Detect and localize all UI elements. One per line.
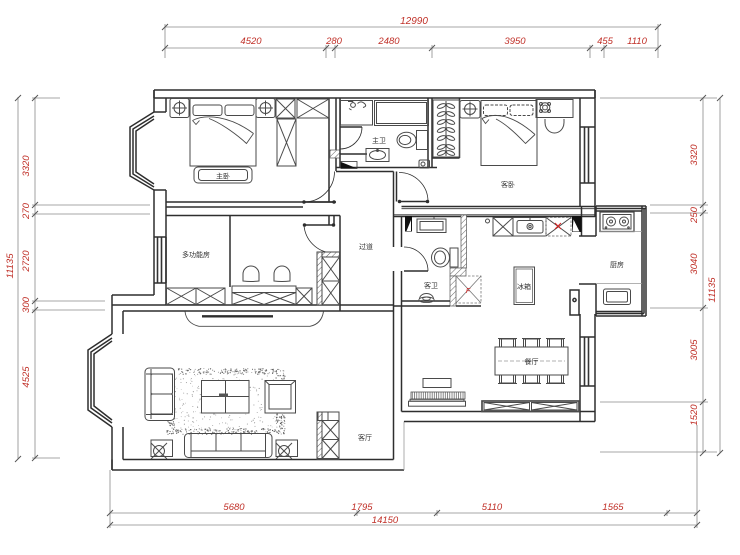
svg-text:3320: 3320 — [689, 144, 700, 166]
svg-text:餐厅: 餐厅 — [525, 357, 539, 366]
svg-text:3950: 3950 — [504, 36, 526, 47]
svg-text:客厅: 客厅 — [358, 433, 372, 442]
svg-text:主卧: 主卧 — [216, 172, 230, 181]
svg-text:5110: 5110 — [482, 502, 503, 513]
svg-text:主卫: 主卫 — [372, 136, 386, 145]
svg-text:455: 455 — [597, 36, 614, 47]
svg-text:5680: 5680 — [223, 502, 245, 513]
svg-text:1520: 1520 — [689, 404, 700, 426]
svg-text:250: 250 — [689, 206, 700, 224]
svg-text:300: 300 — [21, 296, 32, 313]
svg-text:280: 280 — [325, 36, 343, 47]
svg-text:2720: 2720 — [21, 250, 32, 273]
svg-text:过道: 过道 — [359, 242, 373, 251]
svg-text:3040: 3040 — [689, 253, 700, 275]
svg-text:1110: 1110 — [627, 36, 647, 47]
svg-text:1795: 1795 — [351, 502, 373, 513]
svg-text:4525: 4525 — [21, 366, 32, 388]
svg-text:12990: 12990 — [400, 16, 428, 27]
svg-text:3005: 3005 — [689, 339, 700, 361]
svg-text:270: 270 — [21, 202, 32, 220]
svg-text:多功能房: 多功能房 — [182, 250, 210, 259]
svg-text:11135: 11135 — [5, 253, 16, 279]
svg-text:1565: 1565 — [602, 502, 624, 513]
svg-text:冰箱: 冰箱 — [517, 282, 531, 291]
svg-text:客卫: 客卫 — [424, 281, 438, 290]
svg-text:2480: 2480 — [377, 36, 400, 47]
svg-text:厨房: 厨房 — [610, 260, 624, 269]
svg-text:F: F — [466, 288, 471, 295]
svg-text:4520: 4520 — [240, 36, 262, 47]
svg-text:11135: 11135 — [707, 277, 718, 303]
svg-text:3320: 3320 — [21, 155, 32, 177]
svg-text:14150: 14150 — [372, 515, 399, 526]
svg-text:客卧: 客卧 — [501, 180, 515, 189]
